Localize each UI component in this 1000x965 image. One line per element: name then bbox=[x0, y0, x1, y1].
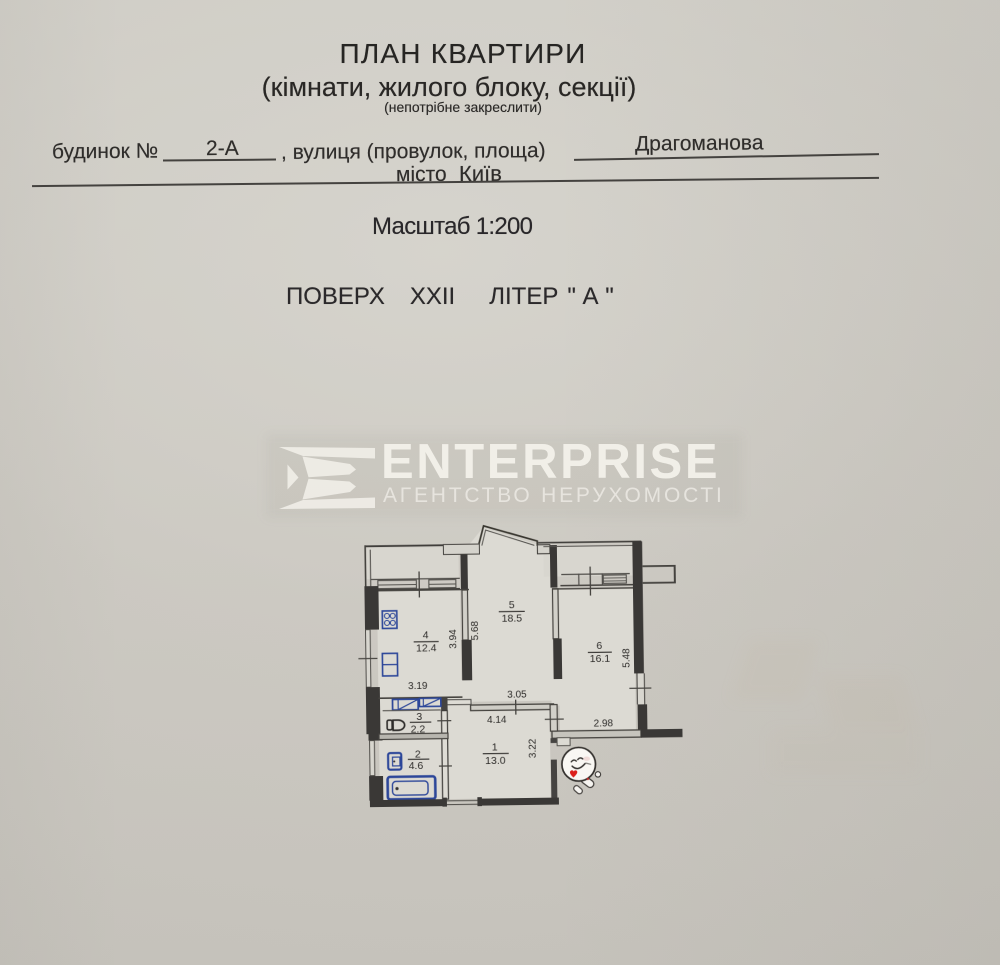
svg-text:5.68: 5.68 bbox=[470, 620, 481, 640]
svg-text:5: 5 bbox=[509, 599, 515, 611]
svg-text:2.2: 2.2 bbox=[411, 723, 426, 735]
svg-text:3.22: 3.22 bbox=[528, 738, 539, 758]
svg-text:18.5: 18.5 bbox=[502, 613, 523, 625]
svg-text:2: 2 bbox=[415, 748, 421, 760]
svg-text:3.19: 3.19 bbox=[408, 681, 428, 692]
svg-text:2.98: 2.98 bbox=[594, 718, 614, 729]
svg-text:4.14: 4.14 bbox=[487, 715, 507, 726]
svg-text:4.6: 4.6 bbox=[409, 760, 424, 772]
svg-text:1: 1 bbox=[492, 741, 498, 753]
svg-text:6: 6 bbox=[596, 640, 602, 652]
svg-text:3: 3 bbox=[416, 711, 422, 723]
svg-text:3.05: 3.05 bbox=[507, 689, 527, 700]
svg-text:16.1: 16.1 bbox=[590, 653, 611, 665]
svg-text:3.94: 3.94 bbox=[448, 629, 459, 649]
svg-text:4: 4 bbox=[423, 629, 429, 641]
svg-text:12.4: 12.4 bbox=[416, 642, 437, 654]
svg-text:13.0: 13.0 bbox=[485, 755, 506, 767]
svg-text:5.48: 5.48 bbox=[621, 648, 632, 668]
